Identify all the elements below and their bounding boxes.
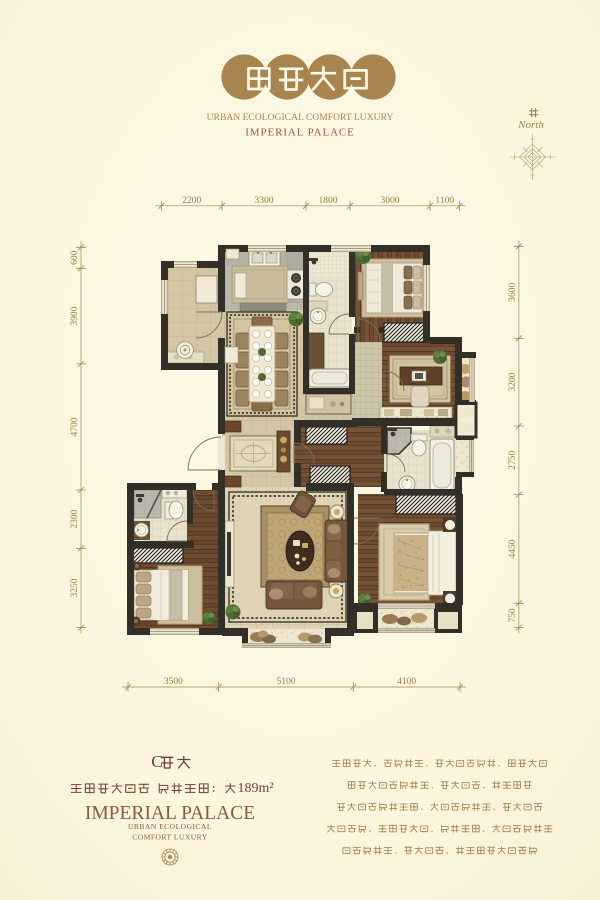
svg-text:2200: 2200	[182, 196, 201, 206]
svg-text:2300: 2300	[70, 509, 80, 528]
svg-text:COMFORT LUXURY: COMFORT LUXURY	[132, 833, 207, 842]
svg-text:URBAN ECOLOGICAL: URBAN ECOLOGICAL	[128, 822, 212, 831]
svg-text:4100: 4100	[397, 677, 416, 687]
svg-text:North: North	[517, 119, 544, 131]
svg-text:3250: 3250	[70, 578, 80, 597]
svg-text:3300: 3300	[255, 196, 274, 206]
svg-text:3900: 3900	[70, 306, 80, 325]
svg-text:2750: 2750	[508, 451, 518, 470]
svg-text:IMPERIAL PALACE: IMPERIAL PALACE	[85, 803, 255, 824]
svg-text:IMPERIAL PALACE: IMPERIAL PALACE	[245, 127, 355, 139]
svg-text:1800: 1800	[319, 196, 338, 206]
svg-text:URBAN ECOLOGICAL COMFORT LUXUR: URBAN ECOLOGICAL COMFORT LUXURY	[207, 112, 394, 123]
svg-text:1100: 1100	[435, 196, 454, 206]
svg-text:C: C	[151, 752, 163, 771]
svg-text:750: 750	[508, 608, 518, 623]
svg-text:4450: 4450	[508, 539, 518, 558]
svg-text:189m²: 189m²	[238, 781, 274, 796]
svg-text:3200: 3200	[508, 372, 518, 391]
svg-text:600: 600	[70, 250, 80, 265]
svg-text:3000: 3000	[381, 196, 400, 206]
svg-text:5100: 5100	[277, 677, 296, 687]
svg-text:3500: 3500	[164, 677, 183, 687]
svg-text:3600: 3600	[508, 283, 518, 302]
svg-text:4700: 4700	[70, 417, 80, 436]
